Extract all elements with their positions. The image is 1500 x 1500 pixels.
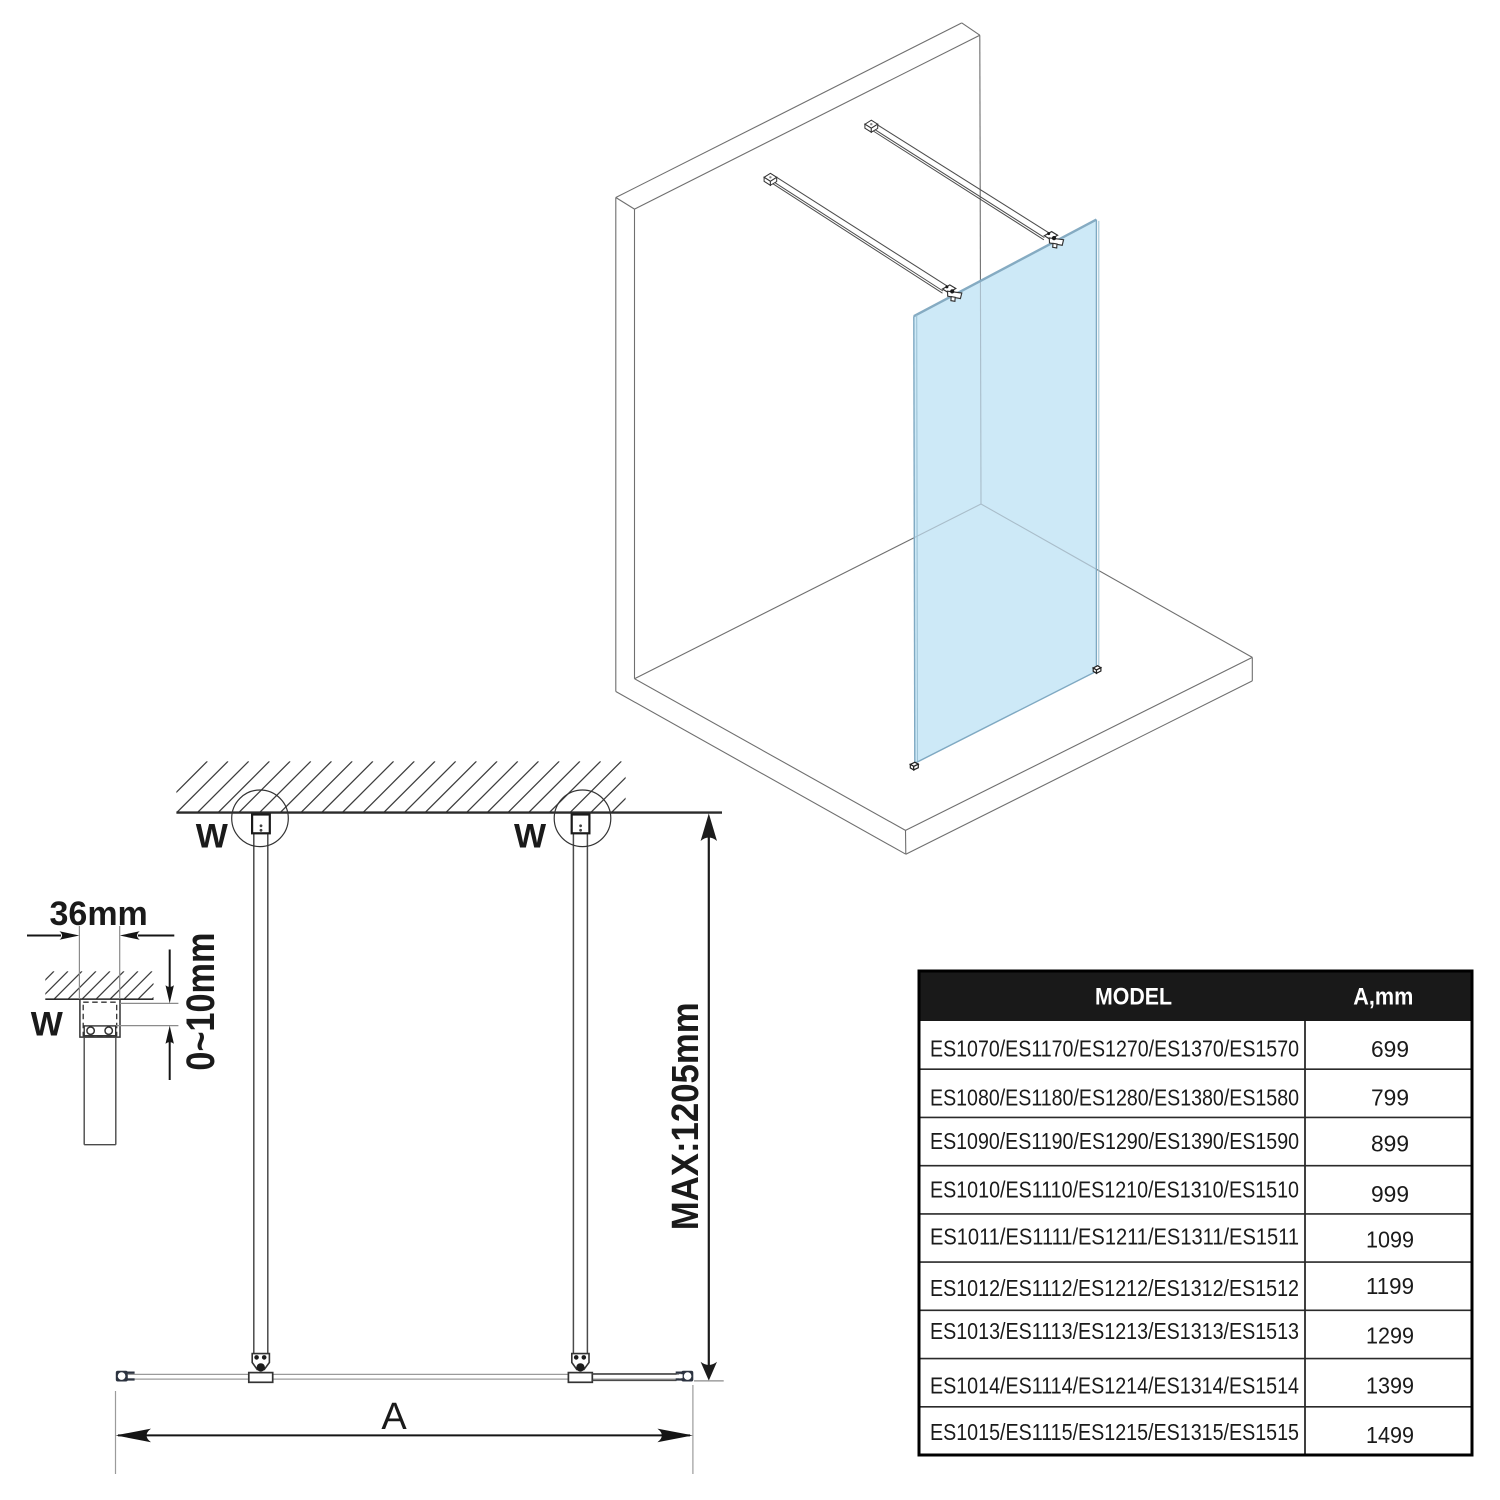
svg-text:ES1010/ES1110/ES1210/ES1310/ES: ES1010/ES1110/ES1210/ES1310/ES1510	[930, 1176, 1299, 1202]
svg-text:899: 899	[1371, 1130, 1409, 1156]
svg-text:1399: 1399	[1366, 1372, 1414, 1398]
svg-text:ES1090/ES1190/ES1290/ES1390/ES: ES1090/ES1190/ES1290/ES1390/ES1590	[930, 1128, 1299, 1154]
svg-text:MAX:1205mm: MAX:1205mm	[665, 1002, 707, 1230]
svg-text:799: 799	[1371, 1085, 1409, 1111]
svg-text:0~10mm: 0~10mm	[179, 933, 223, 1071]
svg-text:ES1012/ES1112/ES1212/ES1312/ES: ES1012/ES1112/ES1212/ES1312/ES1512	[930, 1275, 1299, 1301]
svg-text:ES1013/ES1113/ES1213/ES1313/ES: ES1013/ES1113/ES1213/ES1313/ES1513	[930, 1318, 1299, 1344]
svg-text:ES1070/ES1170/ES1270/ES1370/ES: ES1070/ES1170/ES1270/ES1370/ES1570	[930, 1036, 1299, 1062]
svg-text:A: A	[381, 1396, 407, 1438]
svg-text:699: 699	[1371, 1036, 1409, 1062]
svg-text:W: W	[31, 1006, 64, 1044]
svg-text:999: 999	[1371, 1181, 1409, 1207]
svg-text:1299: 1299	[1366, 1322, 1414, 1348]
svg-text:A,mm: A,mm	[1353, 984, 1413, 1011]
svg-text:1099: 1099	[1366, 1226, 1414, 1252]
svg-text:MODEL: MODEL	[1095, 984, 1172, 1011]
svg-text:W: W	[514, 818, 547, 856]
svg-text:ES1080/ES1180/ES1280/ES1380/ES: ES1080/ES1180/ES1280/ES1380/ES1580	[930, 1085, 1299, 1111]
svg-text:36mm: 36mm	[50, 895, 148, 933]
svg-text:1499: 1499	[1366, 1422, 1414, 1448]
svg-text:W: W	[196, 818, 229, 856]
svg-text:1199: 1199	[1366, 1273, 1414, 1299]
svg-text:ES1011/ES1111/ES1211/ES1311/ES: ES1011/ES1111/ES1211/ES1311/ES1511	[930, 1223, 1299, 1249]
svg-text:ES1014/ES1114/ES1214/ES1314/ES: ES1014/ES1114/ES1214/ES1314/ES1514	[930, 1372, 1299, 1398]
svg-text:ES1015/ES1115/ES1215/ES1315/ES: ES1015/ES1115/ES1215/ES1315/ES1515	[930, 1419, 1299, 1445]
